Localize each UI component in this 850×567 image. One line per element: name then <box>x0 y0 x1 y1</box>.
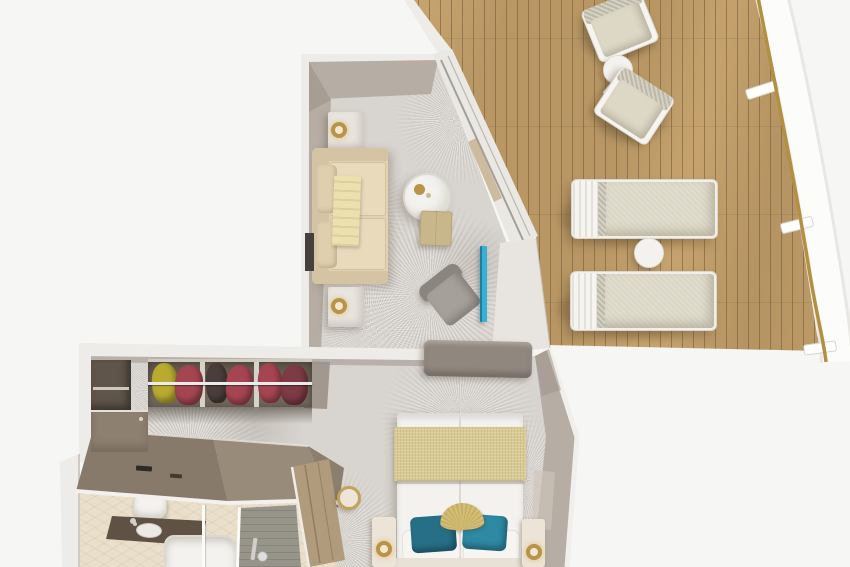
lounger-headrest <box>572 273 598 329</box>
lounger-cushion <box>605 274 714 328</box>
balcony-group <box>0 0 850 567</box>
sun-lounger <box>570 271 717 331</box>
floorplan-render <box>0 0 850 567</box>
lounger-headrest <box>573 181 599 237</box>
sun-lounger <box>571 179 718 239</box>
lounger-cushion <box>606 182 715 236</box>
lounger-side-table <box>634 238 664 268</box>
